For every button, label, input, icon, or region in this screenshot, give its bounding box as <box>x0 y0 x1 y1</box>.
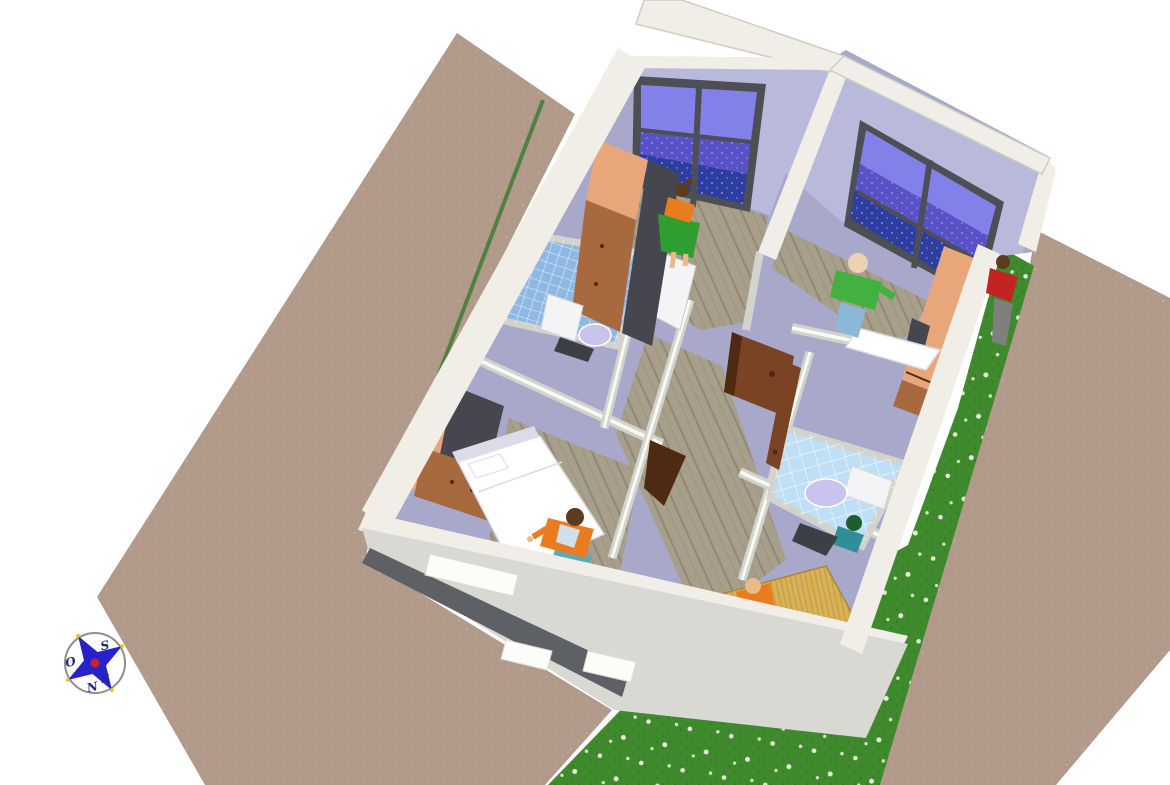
hand <box>527 536 533 542</box>
wardrobe-handle <box>594 282 598 286</box>
sink-bowl <box>579 324 611 346</box>
potted-plant <box>846 515 862 531</box>
toilet-bowl <box>805 479 847 507</box>
top-wall-band <box>628 56 832 70</box>
door-handle <box>773 450 778 455</box>
door-handle <box>769 371 775 377</box>
wardrobe-handle <box>450 480 454 484</box>
wardrobe-handle <box>600 244 604 248</box>
head <box>566 508 584 526</box>
home-3d-render: O S N N <box>0 0 1170 785</box>
compass-center-dot <box>91 659 100 668</box>
head <box>996 255 1010 269</box>
leg <box>672 252 674 268</box>
3d-view-canvas[interactable]: O S N N <box>0 0 1170 785</box>
head <box>745 578 761 594</box>
ponytail <box>686 179 693 186</box>
head <box>675 183 689 197</box>
leg <box>685 254 686 266</box>
bald-head <box>848 253 868 273</box>
